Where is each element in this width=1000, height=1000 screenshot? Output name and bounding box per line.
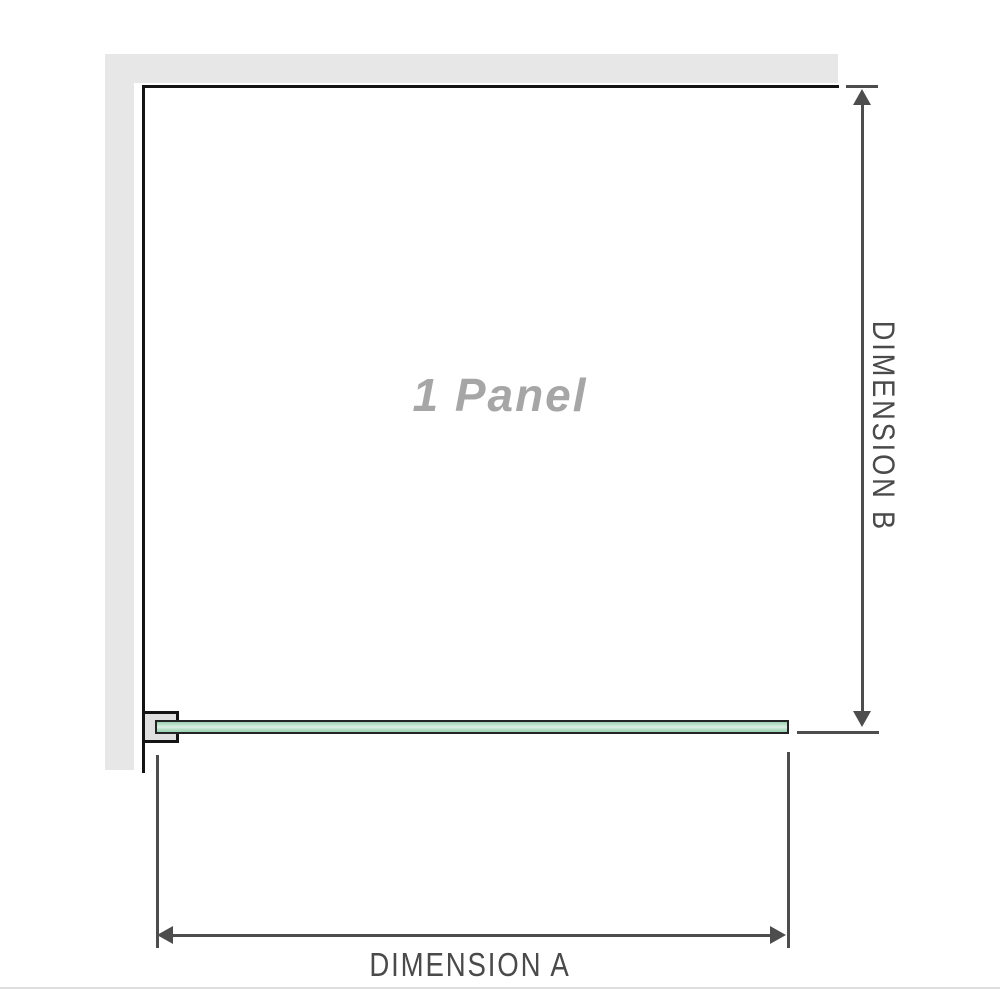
panel-left-edge [142, 85, 145, 773]
arrowhead-down-icon [853, 711, 871, 727]
wall-side-segment [105, 54, 134, 770]
dimension-b-bottom-tick [797, 731, 879, 734]
dimension-b-top-tick [846, 85, 878, 88]
dimension-a-line [166, 934, 780, 937]
dimension-a-right-extension [787, 752, 790, 948]
shower-panel-dimension-diagram: 1 Panel DIMENSION B DIMENSION A [0, 0, 1000, 1000]
glass-panel [155, 720, 789, 734]
dimension-b-label: DIMENSION B [864, 321, 900, 532]
dimension-a-label: DIMENSION A [286, 942, 654, 989]
wall-top-segment [105, 54, 838, 83]
panel-top-edge [142, 85, 839, 88]
bottom-divider [0, 987, 1000, 989]
panel-count-label: 1 Panel [340, 369, 660, 421]
arrowhead-right-icon [770, 926, 786, 944]
dimension-a-left-extension [156, 755, 159, 948]
